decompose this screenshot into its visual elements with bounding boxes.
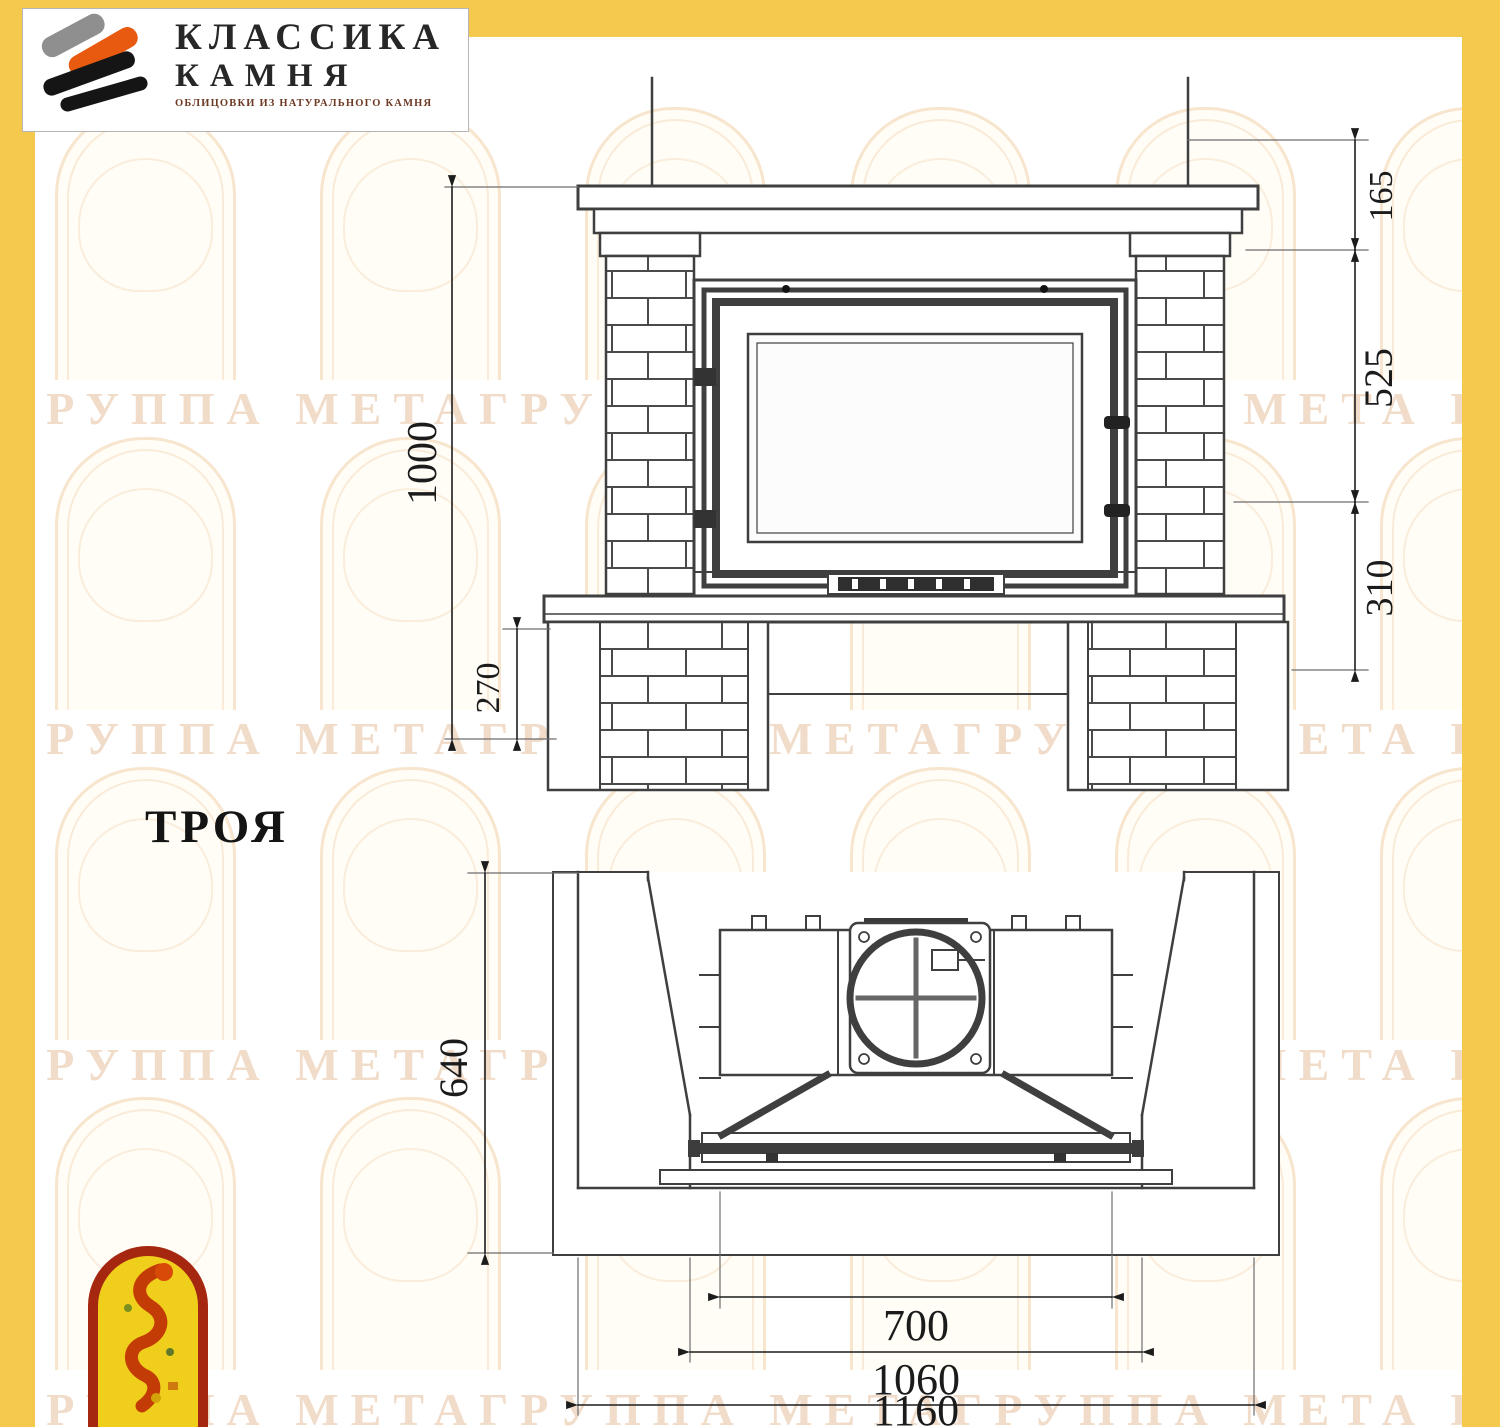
company-logo: КЛАССИКА КАМНЯ ОБЛИЦОВКИ ИЗ НАТУРАЛЬНОГО… <box>22 8 469 132</box>
stone-stack-icon <box>23 9 168 119</box>
watermark-arch <box>1380 767 1462 1040</box>
watermark-arch <box>55 437 236 710</box>
watermark-arch <box>850 107 1031 380</box>
watermark-arch <box>850 1097 1031 1370</box>
drawing-sheet: ГРУППА МЕТАГРУППА МЕТАГРУППА МЕТА ГРУППА… <box>35 37 1462 1427</box>
model-name-label: ТРОЯ <box>145 800 289 854</box>
watermark-arch <box>850 767 1031 1040</box>
watermark-arch <box>55 107 236 380</box>
watermark-arch <box>585 437 766 710</box>
watermark-arch <box>1115 1097 1296 1370</box>
watermark-arch <box>320 107 501 380</box>
logo-subtitle: ОБЛИЦОВКИ ИЗ НАТУРАЛЬНОГО КАМНЯ <box>175 98 446 109</box>
watermark-arch <box>1115 767 1296 1040</box>
logo-title-line2: КАМНЯ <box>175 58 446 94</box>
watermark-arch <box>320 437 501 710</box>
firebird-figure-icon <box>98 1256 198 1416</box>
watermark-arch <box>585 767 766 1040</box>
watermark-text-band: ГРУППА МЕТАГРУППА МЕТАГРУППА МЕТА ГРУППА… <box>35 712 1462 765</box>
watermark-arch <box>585 1097 766 1370</box>
watermark-arch <box>1380 107 1462 380</box>
watermark-arch <box>850 437 1031 710</box>
logo-title-line1: КЛАССИКА <box>175 19 446 58</box>
meta-emblem <box>88 1246 208 1427</box>
watermark-arch <box>1115 107 1296 380</box>
watermark-arch <box>1380 437 1462 710</box>
page: ГРУППА МЕТАГРУППА МЕТАГРУППА МЕТА ГРУППА… <box>0 0 1500 1427</box>
watermark-arch <box>320 1097 501 1370</box>
watermark-arch <box>320 767 501 1040</box>
watermark-arch <box>1380 1097 1462 1370</box>
watermark-text-band: ГРУППА МЕТАГРУППА МЕТАГРУППА МЕТА ГРУППА… <box>35 1038 1462 1091</box>
watermark-arch <box>585 107 766 380</box>
watermark-arch <box>1115 437 1296 710</box>
watermark-text-band: ГРУППА МЕТАГРУППА МЕТАГРУППА МЕТА ГРУППА… <box>35 1383 1462 1427</box>
watermark-text-band: ГРУППА МЕТАГРУППА МЕТАГРУППА МЕТА ГРУППА… <box>35 382 1462 435</box>
